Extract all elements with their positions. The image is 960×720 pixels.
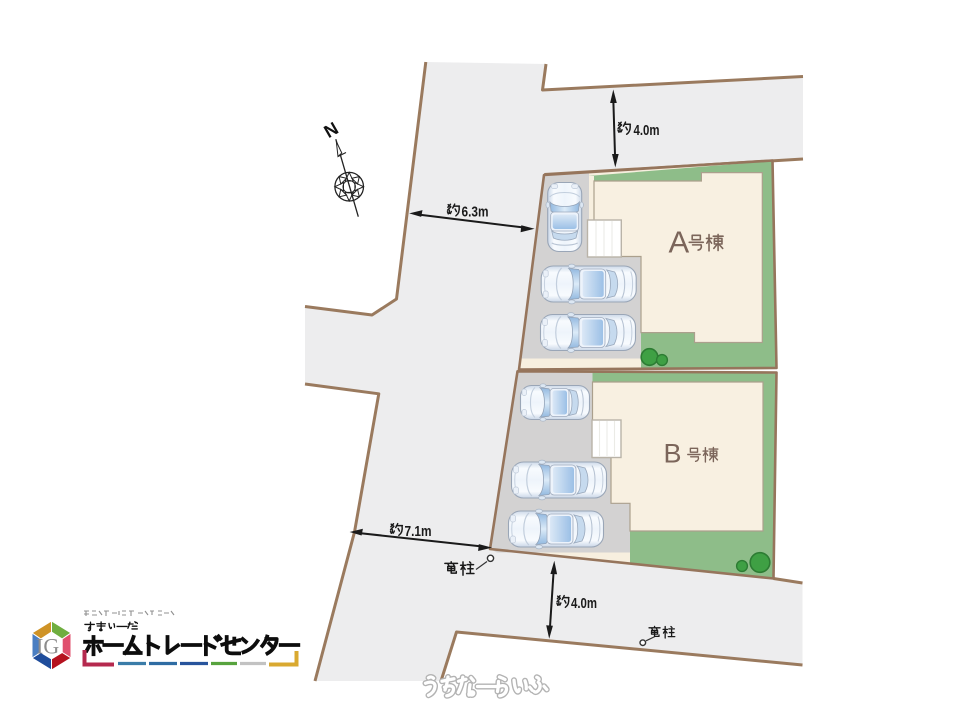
svg-text:6.3m: 6.3m (462, 205, 489, 221)
svg-text:IG: IG (36, 634, 59, 659)
svg-text:A: A (669, 224, 690, 259)
svg-text:4.0m: 4.0m (634, 122, 660, 139)
svg-text:4.0m: 4.0m (571, 596, 597, 612)
svg-text:7.1m: 7.1m (405, 524, 432, 540)
svg-text:B: B (664, 439, 682, 469)
svg-text:N: N (321, 118, 342, 142)
